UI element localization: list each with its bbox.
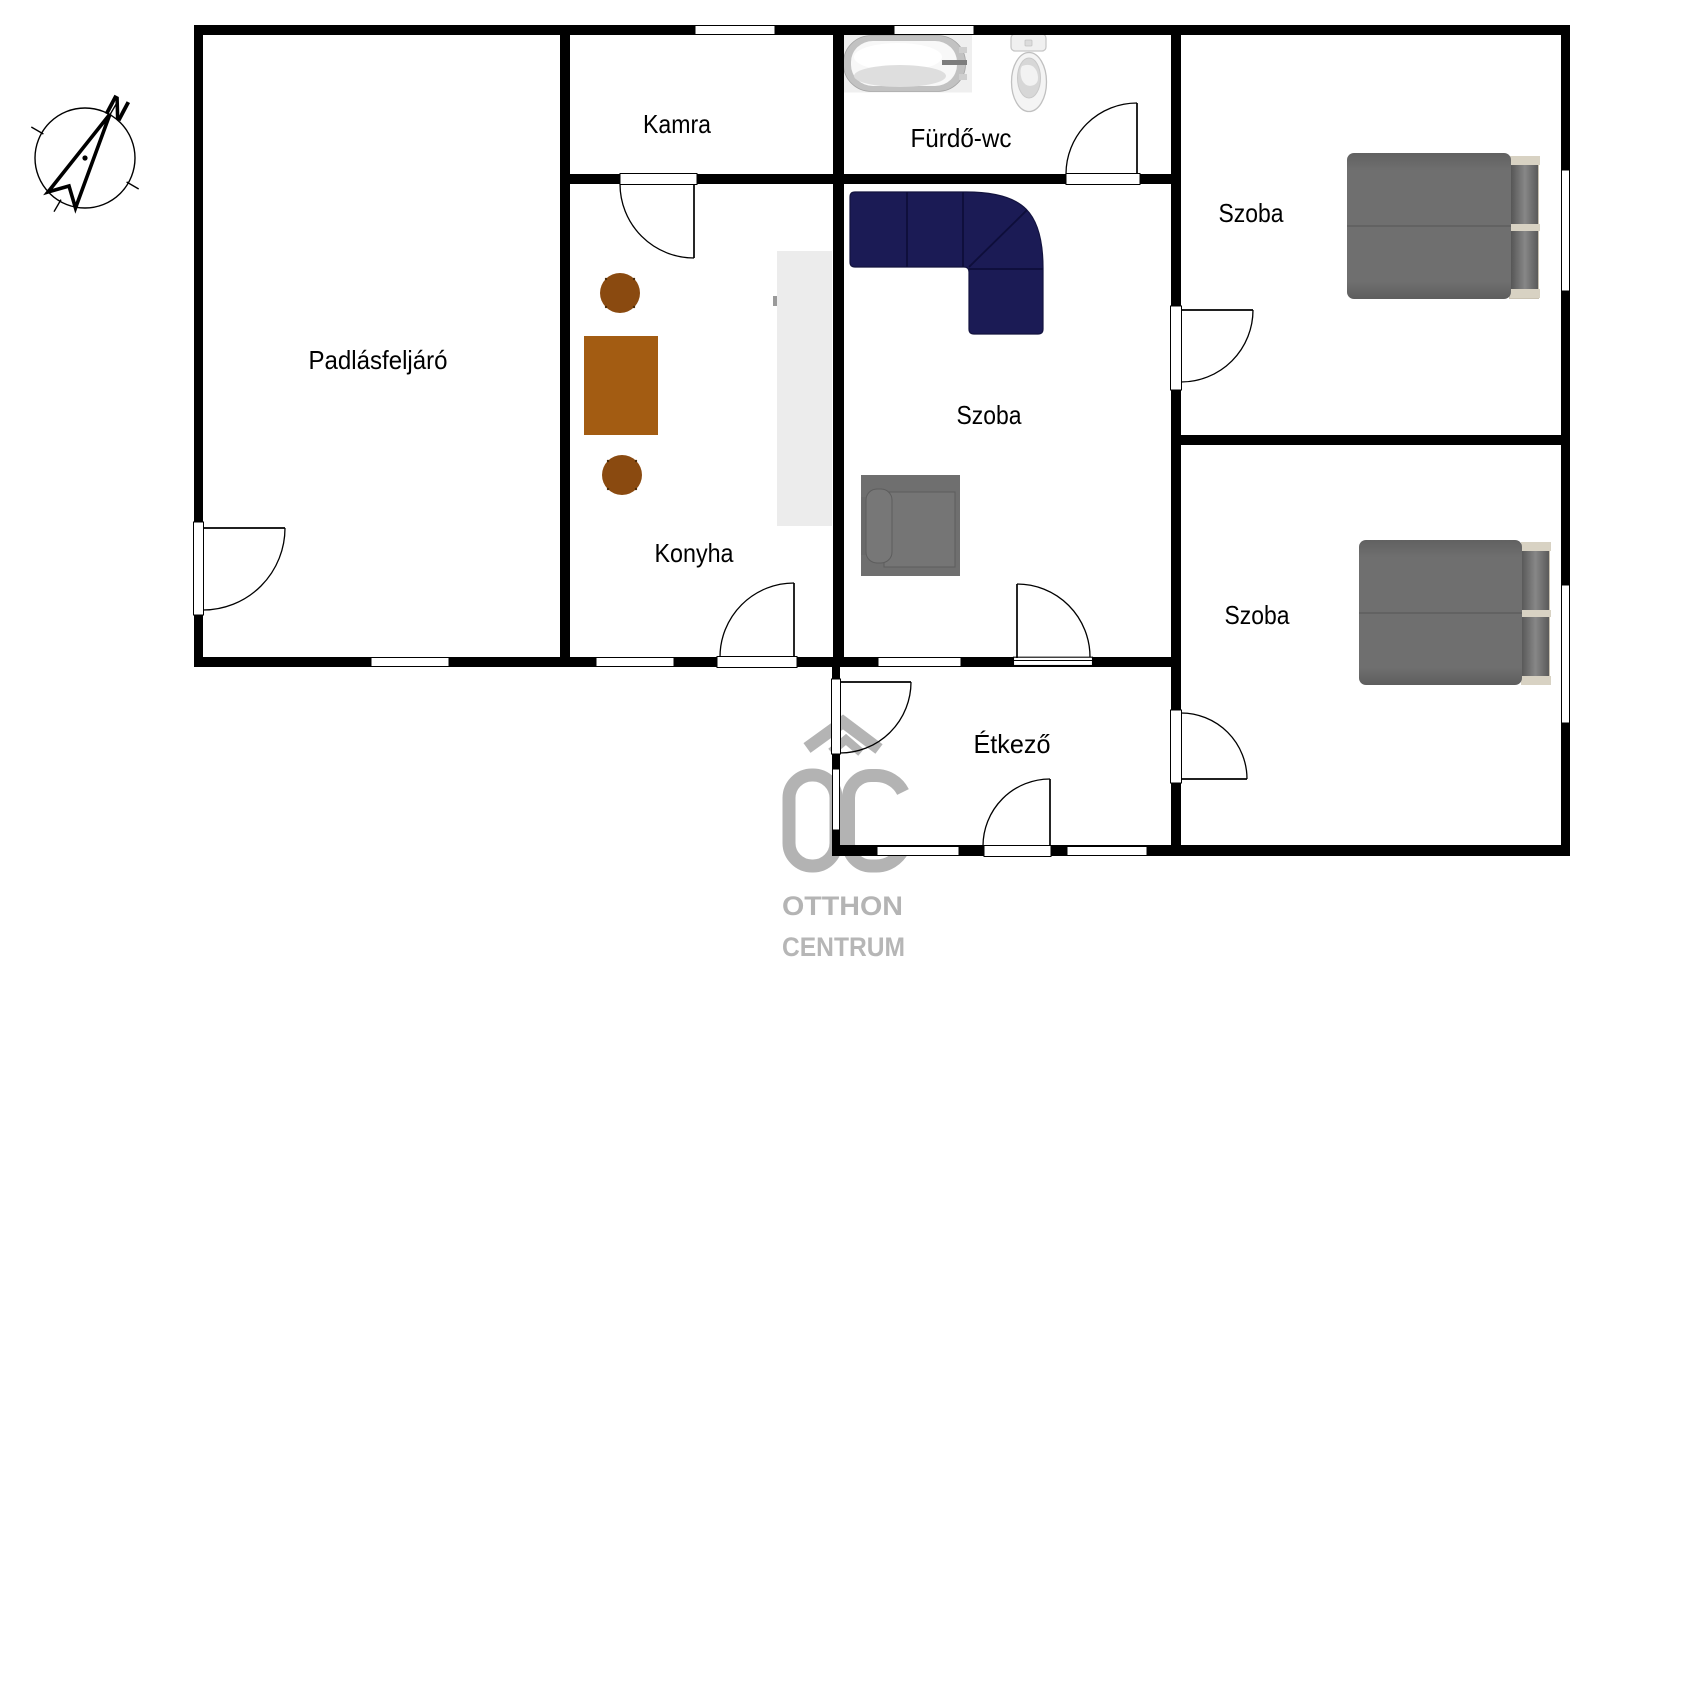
svg-text:OTTHON: OTTHON [782,891,903,921]
svg-text:Szoba: Szoba [1225,600,1290,630]
svg-text:Padlásfeljáró: Padlásfeljáró [309,345,448,375]
svg-text:Étkező: Étkező [974,729,1051,759]
svg-text:Kamra: Kamra [643,109,711,139]
svg-text:Fürdő-wc: Fürdő-wc [911,123,1012,153]
svg-text:Szoba: Szoba [1219,198,1284,228]
svg-text:CENTRUM: CENTRUM [782,932,905,962]
svg-text:Szoba: Szoba [957,400,1022,430]
svg-text:Konyha: Konyha [655,538,734,568]
